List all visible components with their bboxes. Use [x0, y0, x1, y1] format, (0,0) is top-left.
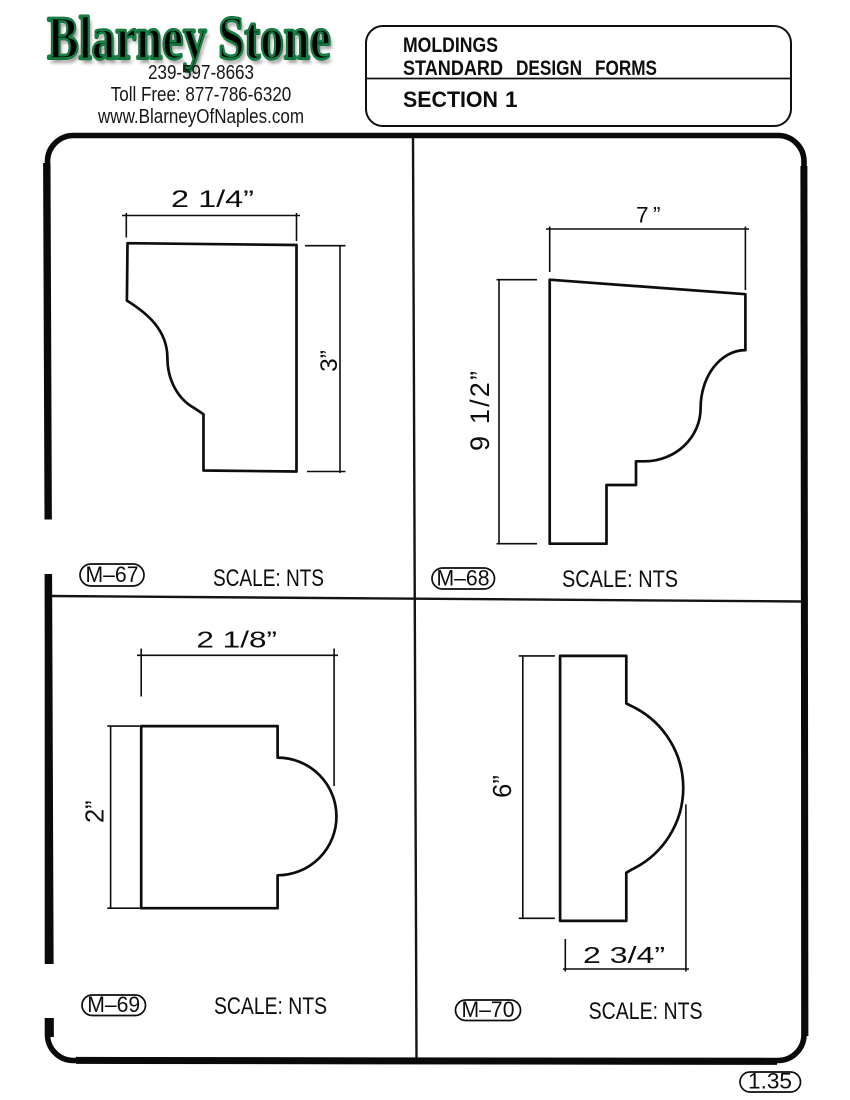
svg-text:SCALE: NTS: SCALE: NTS: [562, 566, 678, 593]
svg-text:SCALE: NTS: SCALE: NTS: [213, 565, 324, 592]
svg-text:M–67: M–67: [86, 562, 139, 587]
svg-text:2”: 2”: [82, 800, 110, 823]
svg-text:MOLDINGS: MOLDINGS: [403, 34, 498, 57]
svg-text:STANDARD: STANDARD: [403, 57, 503, 80]
svg-text:SCALE: NTS: SCALE: NTS: [589, 998, 703, 1025]
svg-text:9 1/2”: 9 1/2”: [465, 371, 495, 451]
svg-text:1.35: 1.35: [748, 1069, 792, 1094]
svg-text:DESIGN: DESIGN: [516, 57, 582, 80]
svg-text:6”: 6”: [489, 775, 517, 798]
svg-text:7”: 7”: [636, 203, 661, 228]
svg-text:SCALE: NTS: SCALE: NTS: [214, 993, 327, 1020]
svg-text:2 3/4”: 2 3/4”: [583, 942, 665, 968]
svg-text:1: 1: [505, 87, 518, 112]
svg-text:M–68: M–68: [437, 566, 490, 591]
svg-text:2 1/4”: 2 1/4”: [171, 186, 254, 213]
svg-text:M–69: M–69: [87, 992, 140, 1017]
svg-text:3”: 3”: [316, 350, 343, 372]
svg-text:2 1/8”: 2 1/8”: [196, 627, 277, 653]
svg-text:M–70: M–70: [462, 997, 515, 1022]
svg-text:FORMS: FORMS: [595, 57, 657, 80]
svg-text:SECTION: SECTION: [403, 87, 498, 112]
